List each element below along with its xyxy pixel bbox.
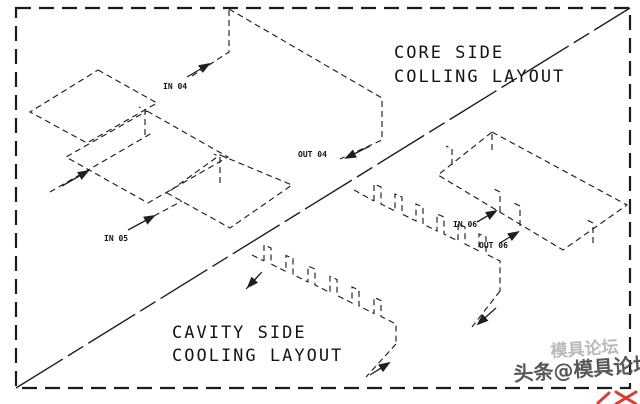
in05-channel bbox=[154, 201, 182, 216]
cad-cooling-layout-drawing: CORE SIDE COLLING LAYOUT CAVITY SIDE COO… bbox=[0, 0, 640, 404]
cavity-jog-4 bbox=[587, 220, 593, 243]
core-side-circuit bbox=[30, 9, 382, 230]
drawing-svg: CORE SIDE COLLING LAYOUT CAVITY SIDE COO… bbox=[0, 0, 640, 404]
core-title-line2: COLLING LAYOUT bbox=[394, 67, 565, 87]
red-stamp-stroke-1 bbox=[598, 393, 609, 403]
cavity-title-line2: COOLING LAYOUT bbox=[172, 346, 343, 366]
in05-flow-arrow-icon bbox=[128, 216, 154, 230]
port-label-out04: OUT 04 bbox=[298, 150, 327, 159]
cavity-left-lead bbox=[252, 255, 264, 261]
in06-flow-arrow-icon bbox=[477, 211, 496, 222]
core-flow-line bbox=[50, 133, 152, 192]
port-label-in04: IN 04 bbox=[163, 82, 187, 91]
watermark-main: 头条@模具论坛 bbox=[513, 352, 640, 386]
diagonal-divider-line bbox=[16, 8, 630, 388]
red-stamp-icon bbox=[598, 392, 636, 404]
cavity-loop-right bbox=[438, 132, 627, 250]
core-loop-2 bbox=[66, 111, 228, 203]
in04-flow-arrow-icon bbox=[187, 64, 209, 77]
core-loop-1 bbox=[30, 70, 157, 143]
core-flow-arrow-icon bbox=[62, 171, 88, 186]
port-label-out06: OUT 06 bbox=[479, 241, 508, 250]
in04-channel bbox=[192, 9, 229, 76]
cavity-title-line1: CAVITY SIDE bbox=[172, 323, 307, 343]
core-title-line1: CORE SIDE bbox=[394, 43, 504, 63]
cavity-baffle-run-upper bbox=[374, 184, 500, 291]
cavity-jog-1 bbox=[446, 146, 452, 165]
cavity-left-out-arrow-icon bbox=[248, 274, 260, 287]
core-loop-3 bbox=[167, 155, 292, 228]
cavity-left-inlet bbox=[366, 344, 396, 377]
out04-flow-arrow-icon bbox=[346, 146, 370, 158]
cavity-upper-lead bbox=[354, 190, 374, 201]
port-label-in05: IN 05 bbox=[104, 234, 128, 243]
out04-channel bbox=[229, 9, 382, 159]
port-label-in06: IN 06 bbox=[453, 220, 477, 229]
